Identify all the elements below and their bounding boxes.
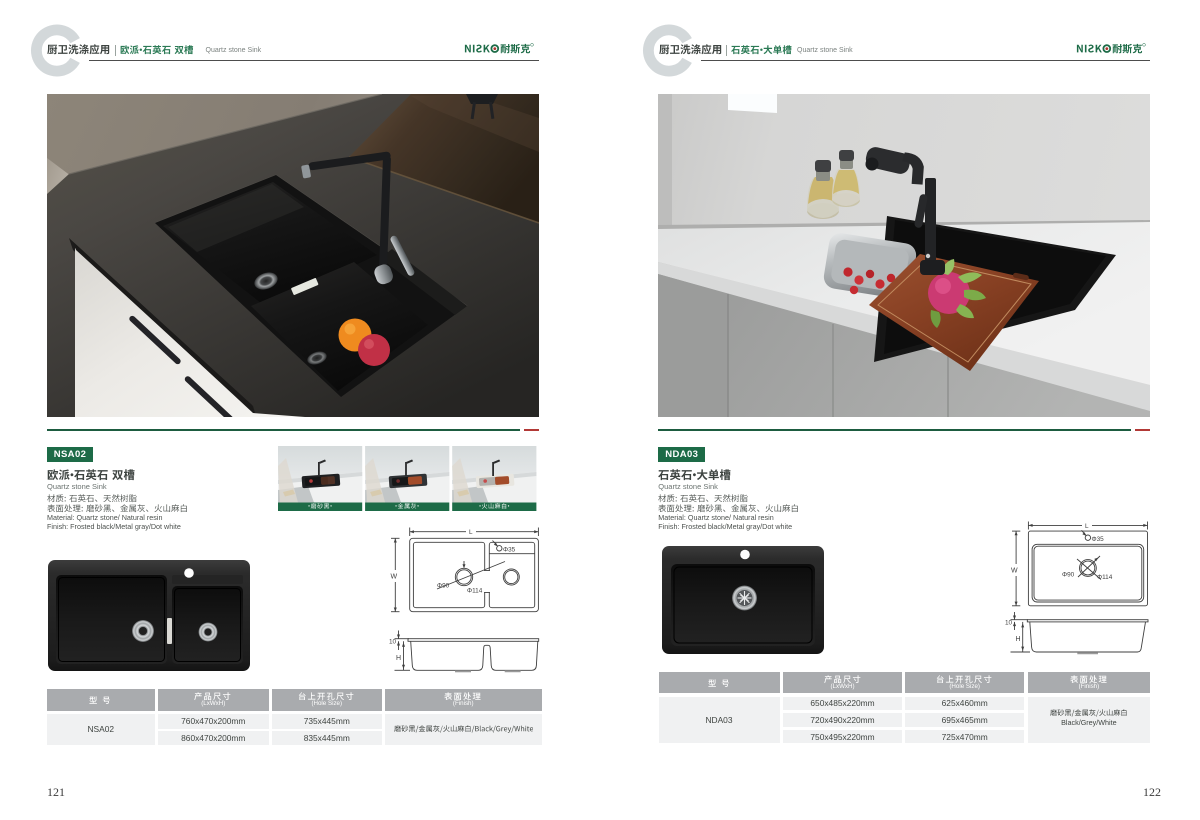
svg-text:L: L	[1085, 523, 1089, 530]
svg-text:Φ35: Φ35	[503, 547, 516, 554]
svg-text:10: 10	[389, 639, 397, 646]
svg-text:W: W	[391, 574, 398, 581]
svg-text:Φ90: Φ90	[1062, 572, 1075, 579]
svg-text:H: H	[1016, 636, 1021, 643]
svg-text:10: 10	[1005, 620, 1013, 627]
svg-text:H: H	[396, 655, 401, 662]
svg-text:Φ35: Φ35	[1092, 536, 1105, 543]
svg-text:Φ90: Φ90	[437, 583, 450, 590]
svg-text:Φ114: Φ114	[1097, 574, 1113, 581]
svg-text:L: L	[469, 529, 473, 536]
svg-text:Φ114: Φ114	[467, 588, 483, 595]
svg-text:W: W	[1011, 568, 1018, 575]
